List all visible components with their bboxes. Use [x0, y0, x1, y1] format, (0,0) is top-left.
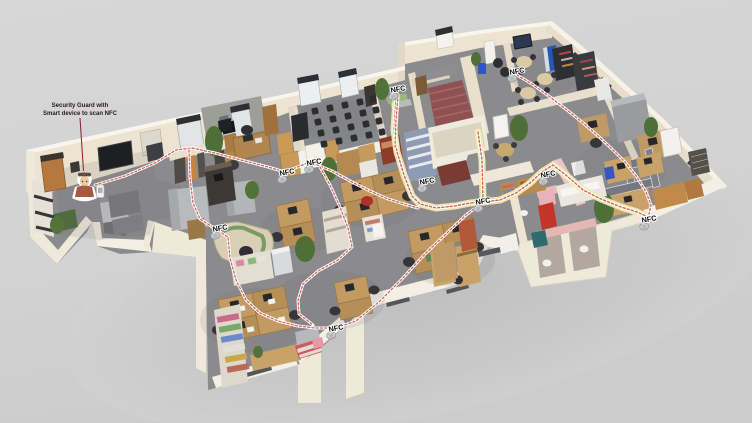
svg-text:Smart device to scan NFC: Smart device to scan NFC	[43, 111, 118, 117]
svg-text:Security Guard with: Security Guard with	[52, 103, 109, 109]
